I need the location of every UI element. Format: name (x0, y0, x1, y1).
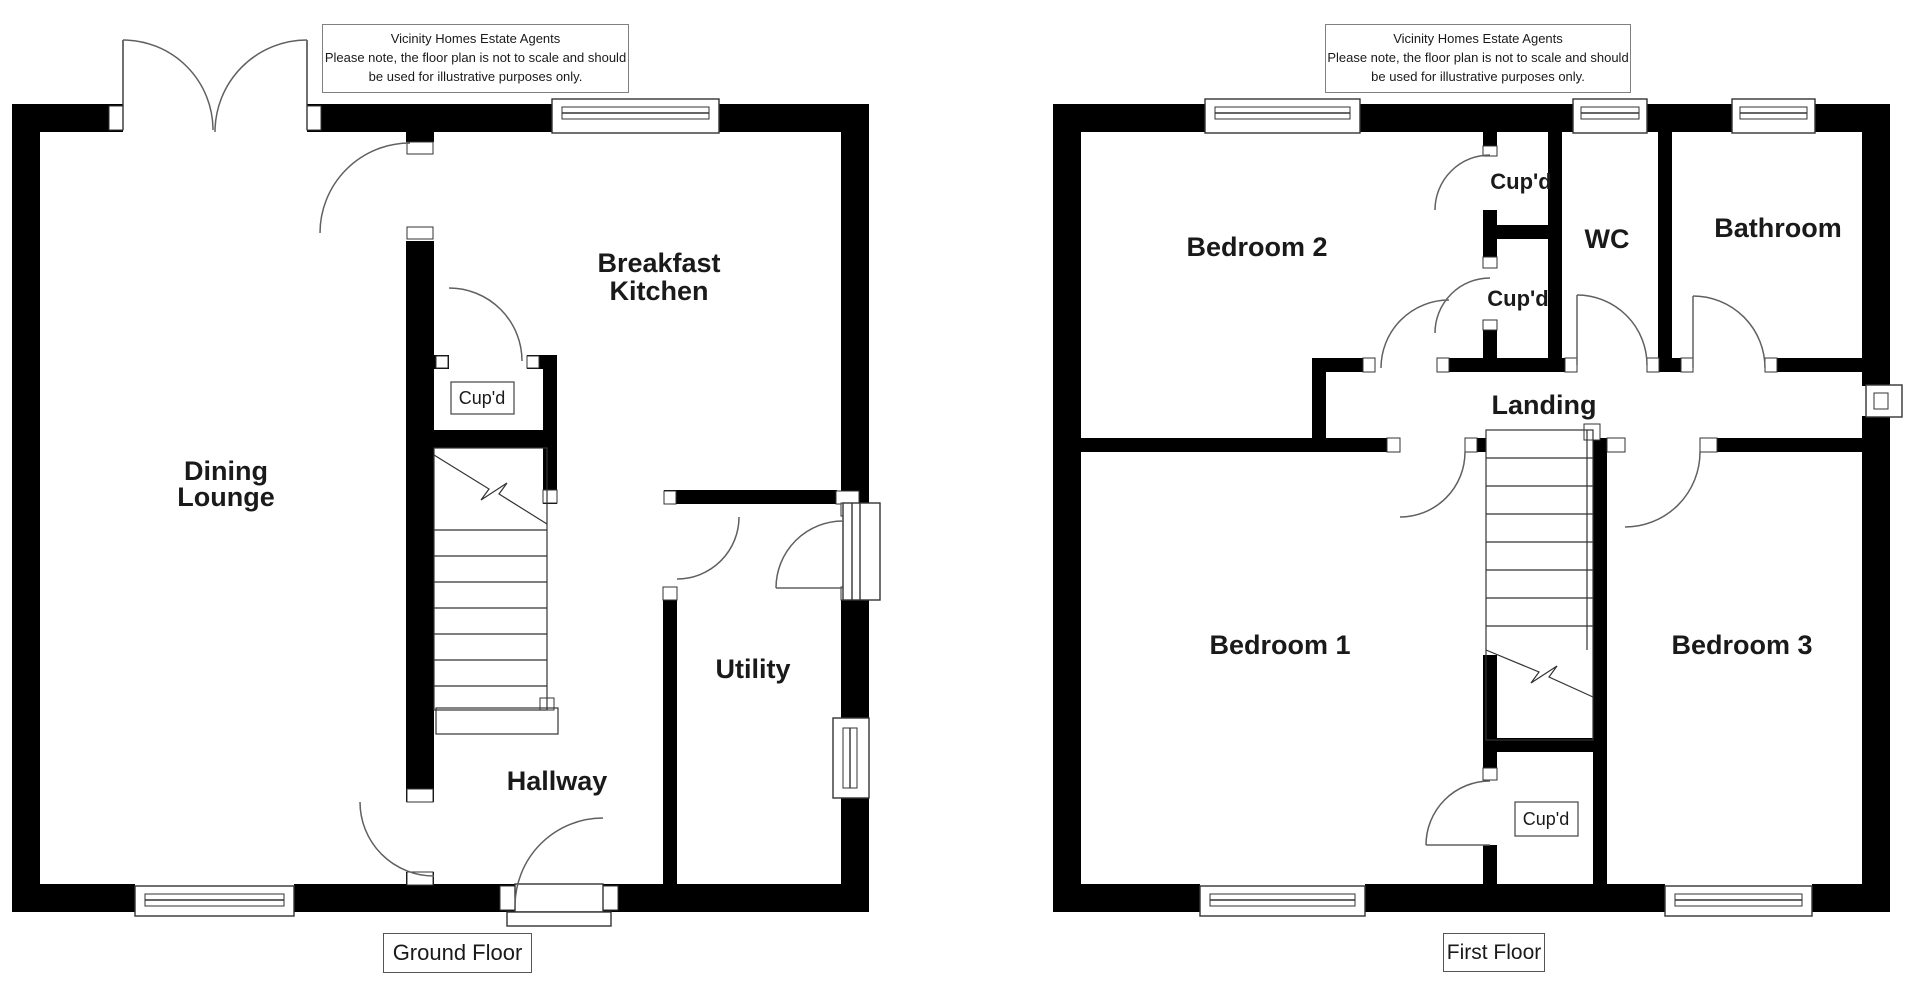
landing-window (1866, 385, 1902, 417)
dining-bottom-window (135, 886, 294, 916)
disclaimer-line3: be used for illustrative purposes only. (1326, 68, 1630, 87)
room-label-bedroom1: Bedroom 1 (1209, 630, 1350, 660)
room-label-cupboard-upper: Cup'd (1490, 169, 1551, 194)
first-room-labels: Bedroom 2 Cup'd Cup'd WC Bathroom Landin… (1186, 169, 1841, 836)
room-label-cupboard-lower: Cup'd (1487, 286, 1548, 311)
room-label-bathroom: Bathroom (1714, 213, 1842, 243)
utility-window (833, 718, 869, 798)
ground-floor-plan: Dining Lounge Breakfast Kitchen Cup'd Ha… (12, 40, 880, 926)
disclaimer-line1: Vicinity Homes Estate Agents (1326, 30, 1630, 49)
bedroom3-window (1665, 886, 1812, 916)
ground-outer-walls (12, 104, 869, 912)
room-label-cupboard-ground: Cup'd (459, 388, 505, 408)
disclaimer-box-ground: Vicinity Homes Estate Agents Please note… (322, 24, 629, 93)
room-label-bedroom3: Bedroom 3 (1671, 630, 1812, 660)
disclaimer-line3: be used for illustrative purposes only. (323, 68, 628, 87)
disclaimer-line2: Please note, the floor plan is not to sc… (1326, 49, 1630, 68)
bedroom1-window (1200, 886, 1365, 916)
floor-plan-page: Dining Lounge Breakfast Kitchen Cup'd Ha… (0, 0, 1920, 988)
floor-plan-drawing: Dining Lounge Breakfast Kitchen Cup'd Ha… (0, 0, 1920, 988)
disclaimer-box-first: Vicinity Homes Estate Agents Please note… (1325, 24, 1631, 93)
room-label-bedroom2: Bedroom 2 (1186, 232, 1327, 262)
room-label-dining-line2: Lounge (177, 482, 274, 512)
ground-room-labels: Dining Lounge Breakfast Kitchen Cup'd Ha… (177, 248, 790, 796)
room-label-hallway: Hallway (507, 766, 608, 796)
wc-window (1573, 99, 1647, 133)
dining-top-window (552, 99, 719, 133)
first-staircase (1486, 430, 1593, 740)
front-door (507, 818, 611, 926)
floor-title-ground: Ground Floor (383, 933, 532, 973)
first-floor-plan: Bedroom 2 Cup'd Cup'd WC Bathroom Landin… (1053, 99, 1902, 916)
back-door (776, 503, 880, 600)
disclaimer-line1: Vicinity Homes Estate Agents (323, 30, 628, 49)
disclaimer-line2: Please note, the floor plan is not to sc… (323, 49, 628, 68)
bedroom2-window (1205, 99, 1360, 133)
room-label-cupboard-bedroom: Cup'd (1523, 809, 1569, 829)
room-label-kitchen-line1: Breakfast (597, 248, 720, 278)
room-label-utility: Utility (715, 654, 790, 684)
room-label-wc: WC (1585, 224, 1630, 254)
french-doors (109, 40, 321, 132)
room-label-landing: Landing (1492, 390, 1597, 420)
room-label-kitchen-line2: Kitchen (609, 276, 708, 306)
floor-title-first-text: First Floor (1447, 941, 1542, 965)
floor-title-first: First Floor (1443, 933, 1545, 972)
ground-staircase (434, 448, 558, 734)
bathroom-window (1732, 99, 1815, 133)
floor-title-ground-text: Ground Floor (393, 940, 523, 966)
